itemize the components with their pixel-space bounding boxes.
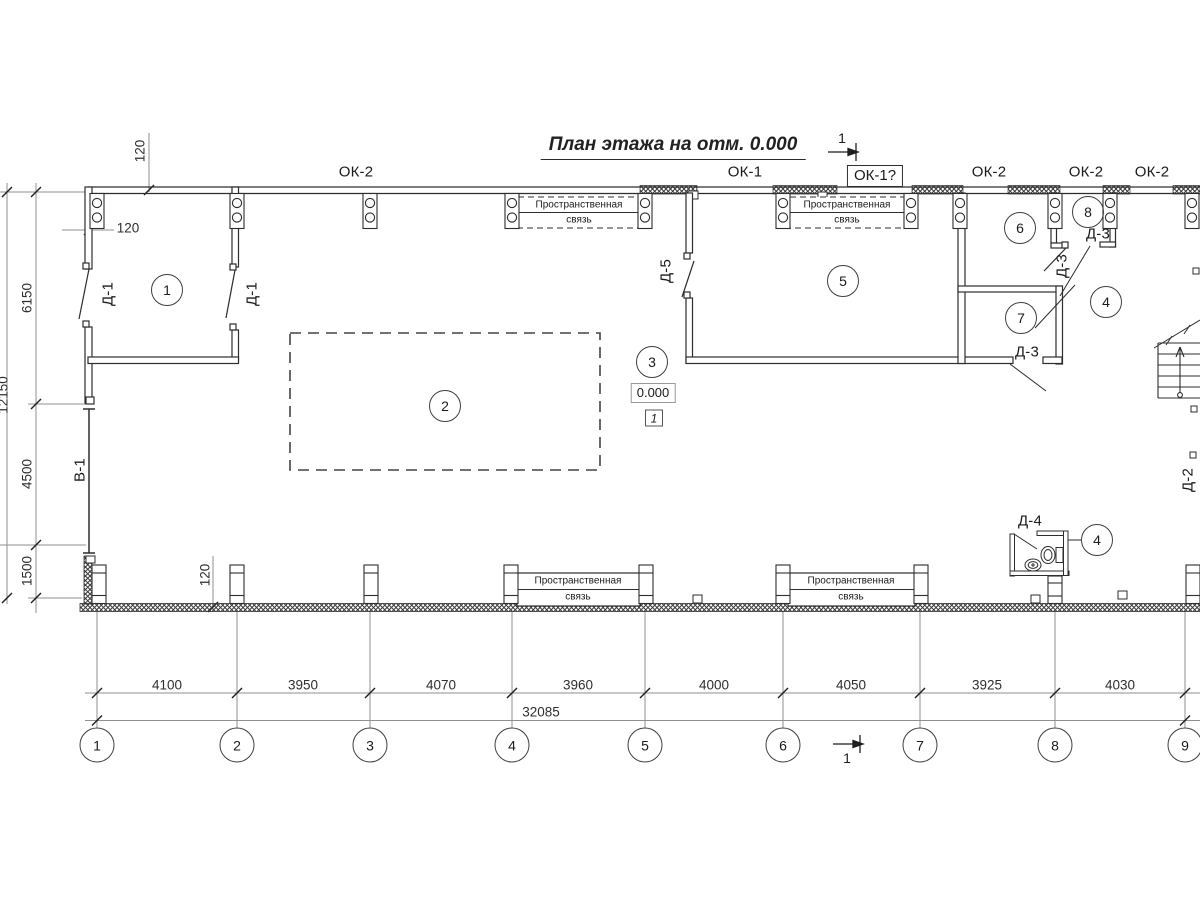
brace-text-line2: связь	[566, 215, 591, 226]
grid-bubble-1: 1	[80, 728, 115, 763]
brace-text-line2: связь	[565, 592, 590, 603]
window-label-ok2-2: ОК-2	[972, 164, 1007, 181]
dim-total-bottom: 32085	[522, 705, 560, 720]
dim-span-4-5: 3960	[563, 678, 593, 693]
elevation-flag: 1	[645, 410, 663, 427]
grid-bubble-8: 8	[1038, 728, 1073, 763]
grid-bubble-3: 3	[353, 728, 388, 763]
room-bubble-5: 5	[827, 265, 859, 297]
door-label-d1-right: Д-1	[244, 282, 261, 306]
room-bubble-8: 8	[1072, 196, 1104, 228]
door-label-d5: Д-5	[658, 259, 675, 283]
brace-text-line1: Пространственная	[804, 200, 891, 211]
dim-left-total: 12150	[0, 376, 11, 414]
window-label-ok2-3: ОК-2	[1069, 164, 1104, 181]
dim-span-7-8: 3925	[972, 678, 1002, 693]
dim-span-3-4: 4070	[426, 678, 456, 693]
dim-span-1-2: 4100	[152, 678, 182, 693]
brace-boxes	[517, 197, 915, 606]
dim-left-6150: 6150	[20, 283, 35, 313]
room-bubble-2: 2	[429, 390, 461, 422]
dim-span-2-3: 3950	[288, 678, 318, 693]
dim-wall-120-top: 120	[133, 140, 148, 163]
grid-bubble-9: 9	[1168, 728, 1200, 763]
door-label-d3-top: Д-3	[1086, 226, 1110, 243]
section-marker-top: 1	[838, 130, 846, 146]
floor-plan-drawing: План этажа на отм. 0.000 ОК-2 ОК-1 ОК-1?…	[0, 0, 1200, 900]
dim-span-8-9: 4030	[1105, 678, 1135, 693]
section-marker-bottom: 1	[843, 750, 851, 766]
door-leaf-d4	[1014, 534, 1037, 549]
room-bubble-3: 3	[636, 346, 668, 378]
grid-bubble-5: 5	[628, 728, 663, 763]
dim-left-4500: 4500	[20, 459, 35, 489]
section-cut-marks	[828, 143, 863, 753]
drawing-title: План этажа на отм. 0.000	[541, 134, 806, 160]
window-label-ok1: ОК-1	[728, 164, 763, 181]
door-label-d4: Д-4	[1018, 513, 1042, 530]
dim-wall-120-left: 120	[117, 221, 140, 236]
door-label-d1-left: Д-1	[100, 282, 117, 306]
door-leaf-d1-right	[226, 270, 235, 318]
door-label-d3-rotated: Д-3	[1054, 254, 1071, 278]
brace-text-line1: Пространственная	[535, 576, 622, 587]
room-bubble-6: 6	[1004, 212, 1036, 244]
door-label-d2: Д-2	[1180, 468, 1197, 492]
door-leaf-d1-left	[79, 269, 89, 319]
dim-left-1500: 1500	[20, 556, 35, 586]
room-bubble-4b: 4	[1081, 524, 1113, 556]
room-bubble-7: 7	[1005, 302, 1037, 334]
sink-icon	[1025, 559, 1041, 571]
staircase	[1154, 320, 1200, 398]
window-label-ok2-1: ОК-2	[339, 164, 374, 181]
elevation-mark: 0.000	[631, 383, 676, 403]
door-label-d3-room7: Д-3	[1015, 344, 1039, 361]
brace-text-line1: Пространственная	[536, 200, 623, 211]
window-label-ok1-query: ОК-1?	[847, 165, 903, 187]
grid-bubble-7: 7	[903, 728, 938, 763]
dim-wall-120-bottom: 120	[198, 564, 213, 587]
brace-text-line2: связь	[834, 215, 859, 226]
grid-bubble-4: 4	[495, 728, 530, 763]
wc-room	[1010, 531, 1069, 576]
dimension-ticks	[2, 185, 1190, 726]
toilet-icon	[1041, 547, 1063, 564]
room-bubble-1: 1	[151, 274, 183, 306]
gate-label-v1: В-1	[72, 458, 89, 482]
room-bubble-4a: 4	[1090, 286, 1122, 318]
window-label-ok2-4: ОК-2	[1135, 164, 1170, 181]
brace-text-line1: Пространственная	[808, 576, 895, 587]
dim-span-5-6: 4000	[699, 678, 729, 693]
grid-bubble-2: 2	[220, 728, 255, 763]
brace-text-line2: связь	[838, 592, 863, 603]
grid-bubble-6: 6	[766, 728, 801, 763]
dim-span-6-7: 4050	[836, 678, 866, 693]
